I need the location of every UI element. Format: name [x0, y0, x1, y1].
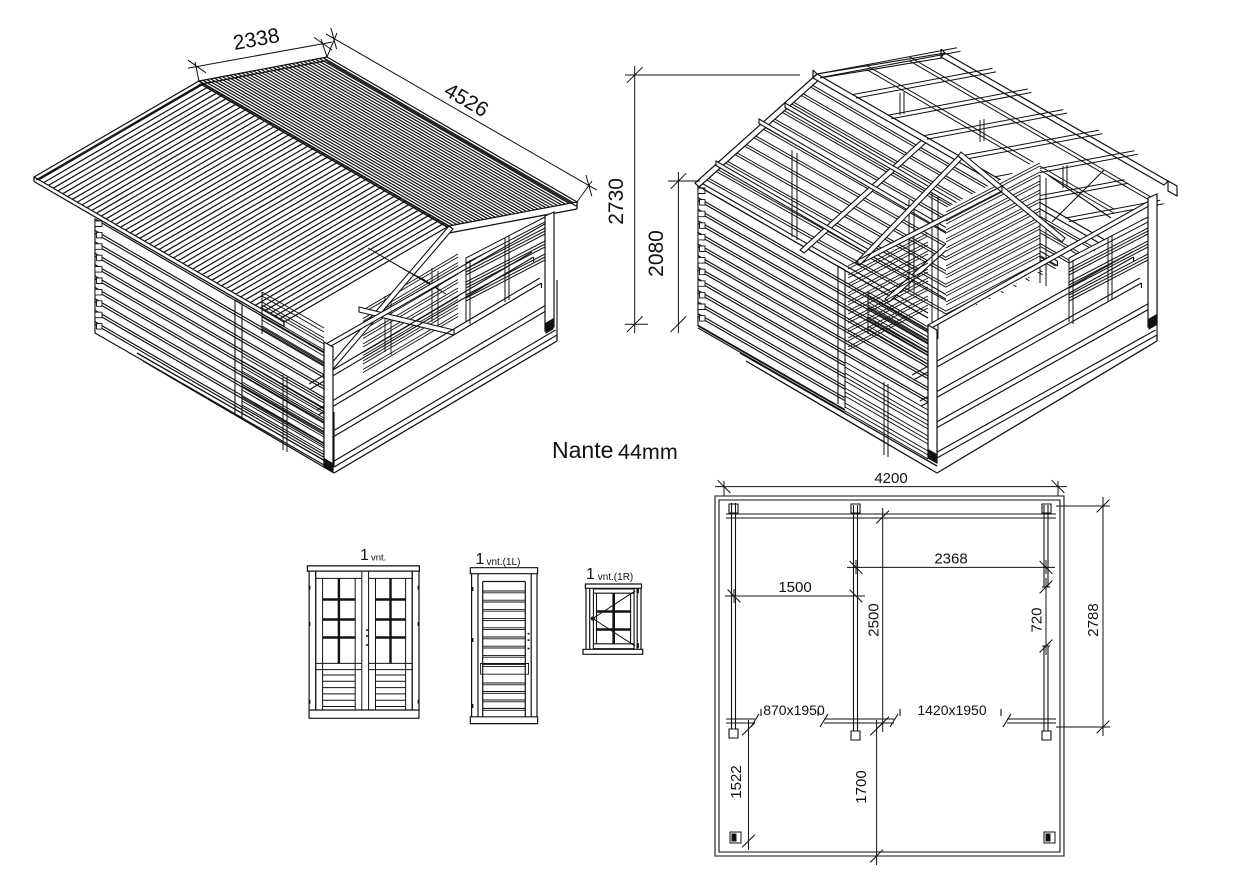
svg-text:2788: 2788: [1085, 603, 1102, 636]
svg-text:Nante: Nante: [552, 437, 613, 463]
svg-text:1: 1: [586, 566, 595, 583]
svg-text:870x1950: 870x1950: [763, 702, 825, 718]
svg-text:4200: 4200: [874, 470, 907, 487]
svg-text:2338: 2338: [231, 24, 281, 55]
svg-text:2500: 2500: [866, 603, 883, 636]
svg-text:2080: 2080: [645, 230, 668, 277]
svg-text:44mm: 44mm: [618, 440, 678, 464]
svg-text:1522: 1522: [728, 765, 745, 798]
svg-text:vnt.(1L): vnt.(1L): [487, 557, 521, 568]
svg-text:1420x1950: 1420x1950: [917, 702, 987, 718]
svg-text:1: 1: [360, 547, 369, 564]
svg-text:1: 1: [476, 551, 485, 568]
svg-text:1700: 1700: [853, 770, 870, 803]
svg-text:2730: 2730: [605, 178, 628, 225]
svg-text:4526: 4526: [440, 79, 492, 122]
svg-text:1500: 1500: [778, 579, 811, 596]
svg-text:vnt.(1R): vnt.(1R): [598, 572, 634, 583]
svg-text:2368: 2368: [934, 551, 967, 568]
svg-text:720: 720: [1029, 607, 1046, 632]
svg-text:vnt.: vnt.: [371, 553, 386, 564]
